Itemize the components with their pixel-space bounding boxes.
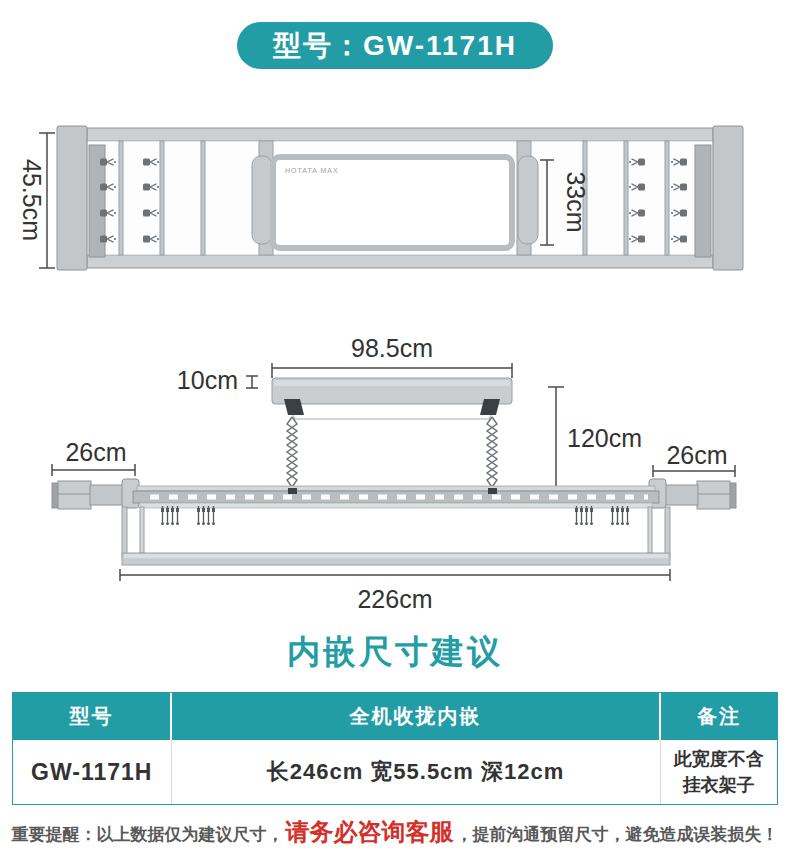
host-body: [272, 378, 512, 419]
footer-note-prefix: 重要提醒：以上数据仅为建议尺寸，: [12, 825, 284, 844]
drop-height-dim-label: 120cm: [567, 424, 642, 452]
drying-rod: [133, 486, 659, 508]
spec-table-row: GW-1171H 长246cm 宽55.5cm 深12cm 此宽度不含挂衣架子: [13, 740, 777, 804]
lower-frame: [122, 507, 670, 565]
front-view-drawing: 98.5cm 10cm 120cm 26cm 26cm: [0, 325, 790, 624]
header-remark: 备注: [660, 693, 777, 740]
header-folded-size: 全机收拢内嵌: [171, 693, 660, 740]
total-width-dim-label: 226cm: [357, 585, 432, 613]
host-width-dim-label: 98.5cm: [351, 334, 433, 362]
host-thickness-dimension: [246, 376, 258, 388]
cell-model: GW-1171H: [13, 740, 171, 804]
spec-table-header-row: 型号 全机收拢内嵌 备注: [13, 693, 777, 740]
left-arm-dim-label: 26cm: [65, 438, 126, 466]
product-spec-sheet: { "colors": { "accent_teal": "#239DA5", …: [0, 0, 790, 858]
total-width-dimension: [120, 569, 670, 581]
height-dim-label: 45.5cm: [18, 159, 46, 241]
host-width-dimension: [272, 363, 512, 378]
cell-remark: 此宽度不含挂衣架子: [660, 740, 777, 804]
right-mount-arm: [649, 479, 736, 509]
brand-label: HOTATA MAX: [285, 167, 339, 174]
lifting-chains: [287, 417, 497, 487]
footer-note: 重要提醒：以上数据仅为建议尺寸，请务必咨询客服，提前沟通预留尺寸，避免造成误装损…: [0, 816, 790, 848]
spec-table: 型号 全机收拢内嵌 备注 GW-1171H 长246cm 宽55.5cm 深12…: [12, 692, 778, 805]
model-badge: 型号：GW-1171H: [237, 22, 553, 69]
left-mount-arm: [52, 479, 139, 509]
footer-note-suffix: ，提前沟通预留尺寸，避免造成误装损失！: [456, 825, 779, 844]
top-view-drawing: 45.5cm HOTATA MAX: [0, 100, 790, 316]
sock-clip-hooks: [161, 506, 629, 525]
cell-dimensions: 长246cm 宽55.5cm 深12cm: [171, 740, 660, 804]
drop-height-dimension: [548, 387, 564, 488]
right-arm-dim-label: 26cm: [666, 441, 727, 469]
section-title: 内嵌尺寸建议: [0, 630, 790, 675]
host-thickness-dim-label: 10cm: [177, 366, 238, 394]
panel-depth-dim-label: 33cm: [562, 171, 590, 232]
footer-note-highlight: 请务必咨询客服: [286, 818, 454, 845]
header-model: 型号: [13, 693, 171, 740]
